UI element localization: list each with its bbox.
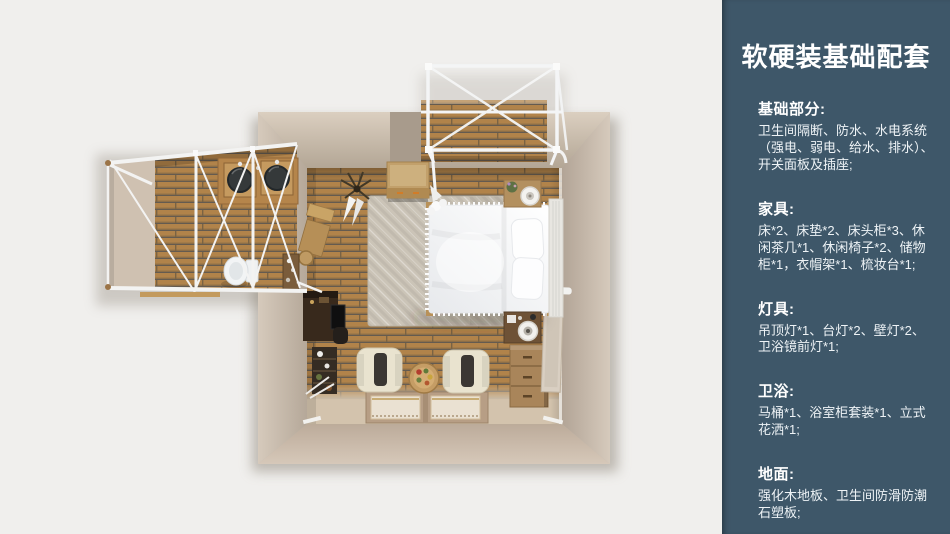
wall-bottom bbox=[258, 424, 610, 464]
section-lighting-body: 吊顶灯*1、台灯*2、壁灯*2、卫浴镜前灯*1; bbox=[758, 323, 937, 357]
nightstand-top bbox=[504, 180, 541, 207]
stool bbox=[333, 327, 348, 344]
pillow bbox=[511, 257, 544, 300]
section-lighting: 灯具: 吊顶灯*1、台灯*2、壁灯*2、卫浴镜前灯*1; bbox=[758, 298, 937, 357]
mirror bbox=[331, 305, 345, 329]
section-flooring: 地面: 强化木地板、卫生间防滑防潮石塑板; bbox=[758, 463, 937, 522]
sink bbox=[265, 166, 289, 190]
tea-table bbox=[409, 363, 439, 393]
section-bathroom-heading: 卫浴: bbox=[758, 380, 937, 401]
wall-top-shadow-patch bbox=[390, 112, 421, 167]
section-basics-heading: 基础部分: bbox=[758, 98, 937, 119]
nightstand-bottom bbox=[504, 312, 541, 343]
section-flooring-body: 强化木地板、卫生间防滑防潮石塑板; bbox=[758, 488, 937, 522]
section-basics: 基础部分: 卫生间隔断、防水、水电系统（强电、弱电、给水、排水）、开关面板及插座… bbox=[758, 98, 937, 174]
section-bathroom: 卫浴: 马桶*1、浴室柜套装*1、立式花洒*1; bbox=[758, 380, 937, 439]
section-flooring-heading: 地面: bbox=[758, 463, 937, 484]
lounge-chair-right bbox=[443, 350, 489, 393]
info-panel: 软硬装基础配套 基础部分: 卫生间隔断、防水、水电系统（强电、弱电、给水、排水）… bbox=[722, 0, 950, 534]
headboard bbox=[549, 199, 563, 317]
bathroom-floor-vinyl bbox=[108, 158, 155, 288]
section-furniture-heading: 家具: bbox=[758, 198, 937, 219]
bed bbox=[410, 199, 554, 327]
pillow bbox=[511, 218, 544, 261]
section-lighting-heading: 灯具: bbox=[758, 298, 937, 319]
section-basics-body: 卫生间隔断、防水、水电系统（强电、弱电、给水、排水）、开关面板及插座; bbox=[758, 123, 937, 174]
lounge-chair-left bbox=[357, 348, 402, 392]
section-furniture-body: 床*2、床垫*2、床头柜*3、休闲茶几*1、休闲椅子*2、储物柜*1，衣帽架*1… bbox=[758, 223, 937, 274]
section-bathroom-body: 马桶*1、浴室柜套装*1、立式花洒*1; bbox=[758, 405, 937, 439]
floorplan-render bbox=[0, 0, 722, 534]
bathroom bbox=[105, 144, 322, 297]
slide: 软硬装基础配套 基础部分: 卫生间隔断、防水、水电系统（强电、弱电、给水、排水）… bbox=[0, 0, 950, 534]
floor-mats bbox=[366, 392, 488, 423]
section-furniture: 家具: 床*2、床垫*2、床头柜*3、休闲茶几*1、休闲椅子*2、储物柜*1，衣… bbox=[758, 198, 937, 274]
panel-title: 软硬装基础配套 bbox=[730, 42, 942, 73]
basket bbox=[299, 251, 313, 265]
storage-cabinet bbox=[387, 162, 429, 202]
